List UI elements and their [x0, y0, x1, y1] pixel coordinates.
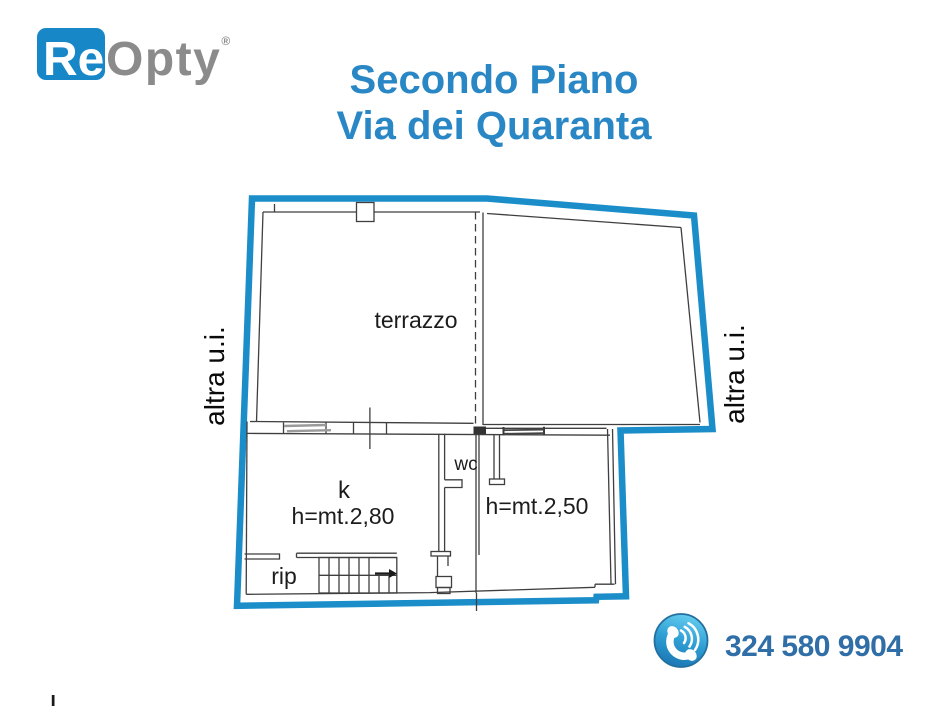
svg-text:terrazzo: terrazzo	[374, 307, 457, 333]
svg-text:rip: rip	[271, 563, 297, 589]
svg-text:k: k	[338, 477, 351, 504]
svg-text:h=mt.2,50: h=mt.2,50	[486, 493, 589, 519]
svg-text:h=mt.2,80: h=mt.2,80	[292, 503, 395, 529]
svg-text:wc: wc	[453, 454, 477, 475]
